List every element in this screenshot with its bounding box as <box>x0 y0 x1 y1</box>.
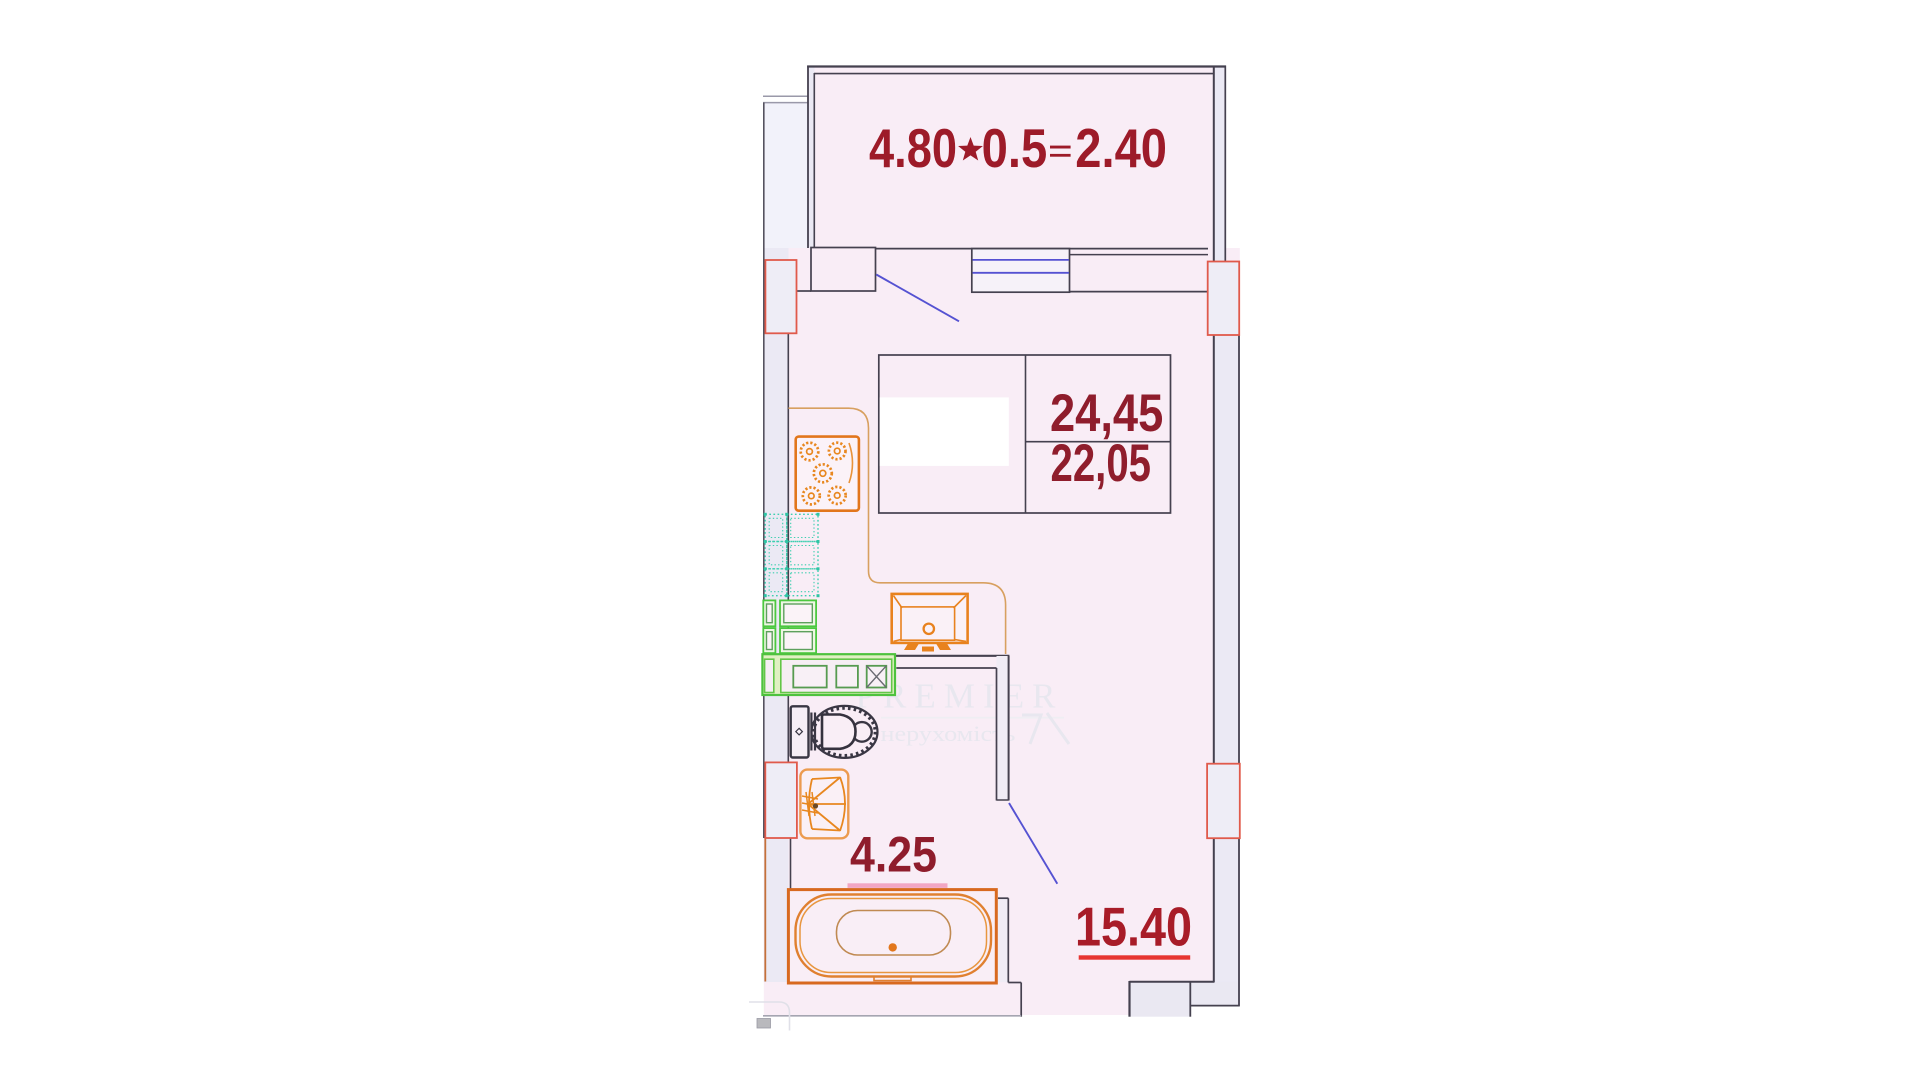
svg-text:4.80: 4.80 <box>869 117 957 179</box>
svg-text:15.40: 15.40 <box>1075 896 1192 958</box>
svg-text:нерухомість: нерухомість <box>881 721 1016 746</box>
svg-text:2.40: 2.40 <box>1075 117 1167 179</box>
svg-text:22,05: 22,05 <box>1051 434 1152 493</box>
svg-text:0.5: 0.5 <box>982 117 1048 179</box>
svg-text:4.25: 4.25 <box>850 827 937 883</box>
